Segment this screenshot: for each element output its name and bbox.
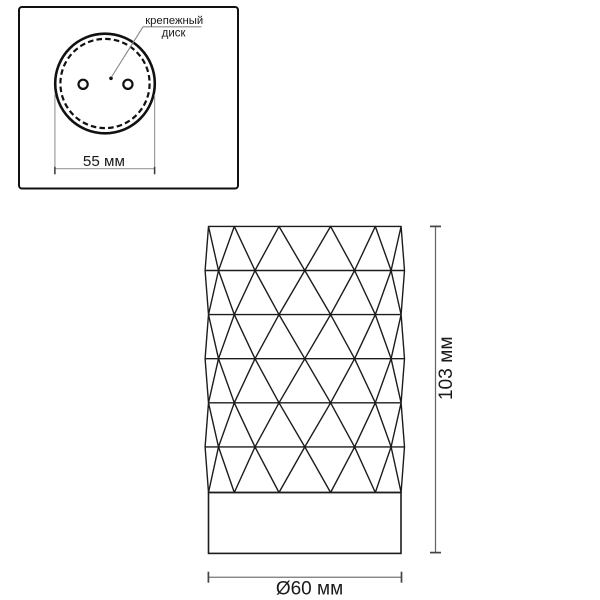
svg-text:55 мм: 55 мм [83,153,125,170]
svg-text:103 мм: 103 мм [436,336,457,400]
svg-text:диск: диск [162,28,187,40]
svg-text:Ø60 мм: Ø60 мм [276,579,343,600]
svg-text:крепежный: крепежный [145,15,203,27]
